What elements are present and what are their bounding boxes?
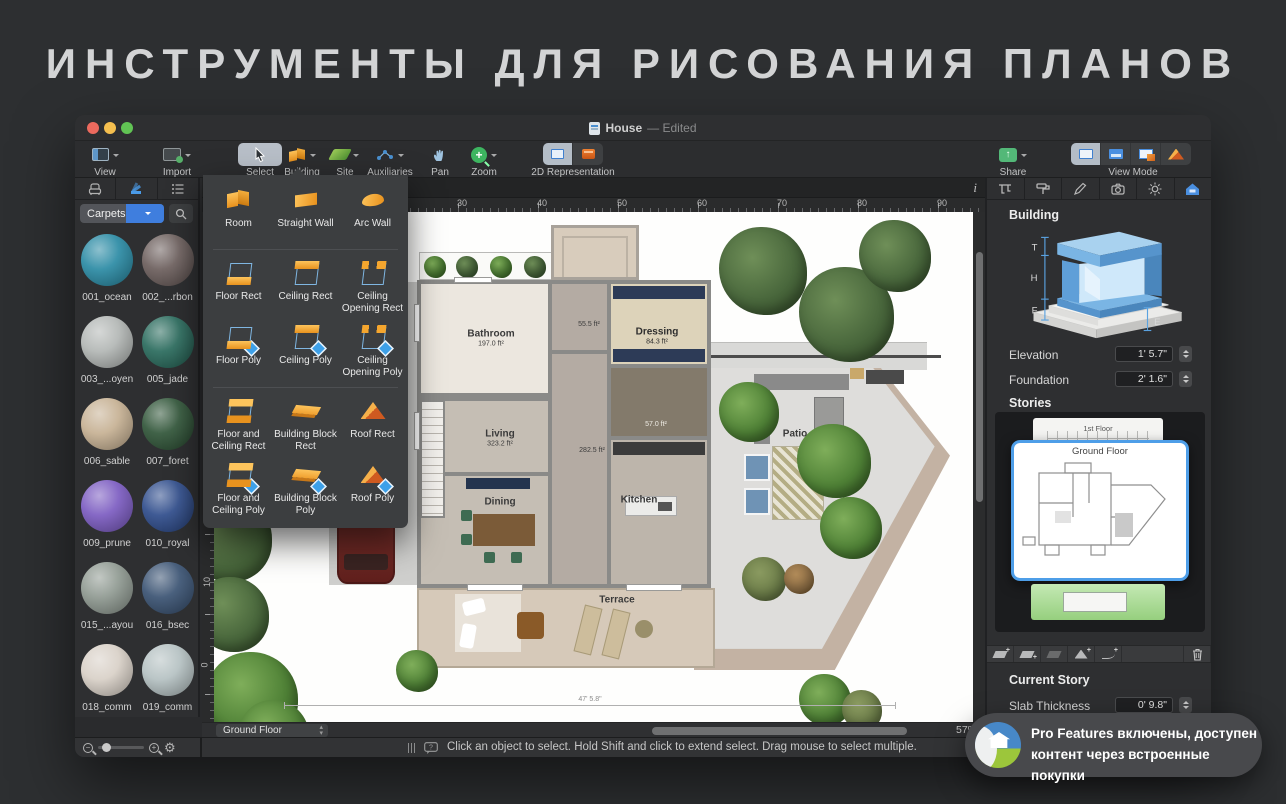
fire-pit <box>784 564 814 594</box>
current-story-title: Current Story <box>1009 673 1090 687</box>
ceiling-rect-icon <box>290 260 322 286</box>
caliper-icon <box>997 181 1013 197</box>
swatch-label: 005_jade <box>147 374 188 385</box>
menu-separator <box>213 249 398 250</box>
add-roof-button[interactable]: + <box>1068 646 1095 662</box>
toolbar: View Import Select Building Site Auxilia… <box>75 141 1211 178</box>
flower-bush <box>396 650 438 692</box>
2d-elevation-view-button[interactable] <box>573 143 603 165</box>
pro-features-toast[interactable]: Pro Features включены, доступенконтент ч… <box>965 713 1262 777</box>
tab-list[interactable] <box>158 178 198 199</box>
menu-item-floor-and-ceiling-poly[interactable]: Floor and Ceiling Poly <box>205 458 272 522</box>
vertical-scrollbar-thumb[interactable] <box>976 252 983 502</box>
materials-fan-icon <box>128 181 144 197</box>
titlebar: House — Edited <box>75 115 1211 141</box>
room-label-dressing: Dressing84.3 ft² <box>636 327 679 346</box>
menu-item-roof-poly[interactable]: Roof Poly <box>339 458 406 522</box>
material-swatch[interactable] <box>81 234 133 286</box>
room-label-dining: Dining <box>484 497 515 508</box>
menu-item-floor-and-ceiling-rect[interactable]: Floor and Ceiling Rect <box>205 394 272 458</box>
duplicate-story-button[interactable] <box>1041 646 1068 662</box>
tab-building[interactable] <box>1175 178 1212 199</box>
auxiliaries-tool-button[interactable] <box>368 143 412 166</box>
tab-camera[interactable] <box>1100 178 1138 199</box>
room-icon <box>223 187 255 213</box>
room-hall[interactable] <box>548 280 611 354</box>
zoom-tool-button[interactable]: + <box>462 143 506 166</box>
swatch-label: 002_...rbon <box>142 292 193 303</box>
toast-message: Pro Features включены, доступенконтент ч… <box>1031 724 1262 787</box>
inspector-panel: Building T <box>985 178 1211 737</box>
menu-item-floor-poly[interactable]: Floor Poly <box>205 320 272 384</box>
search-icon <box>175 208 187 220</box>
add-spline-button[interactable]: + <box>1095 646 1122 662</box>
room-label-bathroom: Bathroom197.0 ft² <box>467 329 514 348</box>
window-marker <box>414 412 420 450</box>
diagram-label-h: H <box>1031 273 1038 284</box>
drag-grip-icon[interactable] <box>408 743 416 753</box>
room-label-corridor: 282.5 ft² <box>579 446 605 454</box>
menu-item-ceiling-opening-rect[interactable]: Ceiling Opening Rect <box>339 256 406 320</box>
swatch-label: 016_bsec <box>146 620 189 631</box>
room-label-living: Living323.2 ft² <box>485 429 514 448</box>
material-swatch[interactable] <box>81 644 133 696</box>
menu-item-arc-wall[interactable]: Arc Wall <box>339 183 406 246</box>
tab-object-properties[interactable] <box>987 178 1025 199</box>
room-dressing[interactable] <box>607 280 711 368</box>
sun-icon <box>1147 181 1163 197</box>
tab-light[interactable] <box>1137 178 1175 199</box>
swatch-label: 015_...ayou <box>81 620 133 631</box>
page-title: ИНСТРУМЕНТЫ ДЛЯ РИСОВАНИЯ ПЛАНОВ <box>0 40 1286 88</box>
search-button[interactable] <box>169 204 193 223</box>
dimension-line: 47' 5.8" <box>284 705 896 706</box>
magnifier-plus-icon: + <box>471 147 487 163</box>
2d-plan-view-button[interactable] <box>543 143 573 165</box>
chevron-down-icon <box>1021 154 1027 160</box>
menu-item-ceiling-rect[interactable]: Ceiling Rect <box>272 256 339 320</box>
material-swatch-grid: 001_ocean 002_...rbon 003_...oyen 005_ja… <box>75 227 198 723</box>
share-button[interactable]: ↑ <box>991 143 1035 166</box>
tab-furniture[interactable] <box>75 178 116 199</box>
menu-item-ceiling-opening-poly[interactable]: Ceiling Opening Poly <box>339 320 406 384</box>
building-diagram: T H F E <box>1005 224 1195 342</box>
material-swatch[interactable] <box>81 480 133 532</box>
select-tool-button[interactable] <box>238 143 282 166</box>
bbq-grill <box>866 370 904 384</box>
window-marker <box>454 277 492 283</box>
ceiling-opening-poly-icon <box>357 324 389 350</box>
building-tool-button[interactable] <box>282 143 322 166</box>
pencil-icon <box>1072 181 1088 197</box>
add-story-below-button[interactable]: + <box>1014 646 1041 662</box>
story-card-terrain[interactable] <box>1031 584 1165 620</box>
straight-wall-icon <box>290 187 322 213</box>
arc-wall-icon <box>357 187 389 213</box>
planter-row <box>419 252 554 280</box>
app-logo-icon <box>975 722 1021 768</box>
2d-elevation-icon <box>582 149 595 159</box>
lounger <box>744 488 770 515</box>
library-filter-row: Carpets <box>75 200 198 227</box>
menu-item-floor-rect[interactable]: Floor Rect <box>205 256 272 320</box>
view-mode-3d-icon <box>1109 149 1123 159</box>
import-icon <box>163 148 181 161</box>
zoom-in-icon[interactable]: + <box>149 743 159 753</box>
material-swatch[interactable] <box>142 562 194 614</box>
import-label: Import <box>145 167 209 178</box>
palm-plant <box>719 382 779 442</box>
app-window: House — Edited View Import Select Buildi… <box>75 115 1211 757</box>
view-icon <box>92 148 109 161</box>
horizontal-scrollbar-thumb[interactable] <box>652 727 907 735</box>
room-closet[interactable] <box>607 364 711 440</box>
library-sidebar: Carpets 001_ocean 002_...rbon 003_...oye… <box>75 178 200 717</box>
stories-toolbar: + + + + <box>987 645 1211 663</box>
ceiling-poly-icon <box>290 324 322 350</box>
bush <box>842 690 882 722</box>
diagram-label-e: E <box>1154 317 1160 328</box>
palm-plant <box>797 424 871 498</box>
terrace-floor <box>417 588 715 668</box>
slider-thumb[interactable] <box>102 743 111 752</box>
swatch-label: 010_royal <box>146 538 190 549</box>
zoom-out-icon[interactable]: − <box>83 743 93 753</box>
swatch-label: 007_foret <box>146 456 188 467</box>
share-label: Share <box>985 167 1041 178</box>
building-section-title: Building <box>1009 208 1059 222</box>
share-icon: ↑ <box>999 148 1017 162</box>
material-swatch[interactable] <box>142 644 194 696</box>
building-icon <box>288 147 306 163</box>
tree <box>214 577 269 652</box>
view-label: View <box>73 167 137 178</box>
door-marker <box>626 584 682 591</box>
chevron-down-icon <box>398 154 404 160</box>
tab-2d-properties[interactable] <box>1062 178 1100 199</box>
elevation-input[interactable]: 1' 5.7" <box>1115 346 1173 362</box>
story-selected-value: Ground Floor <box>223 725 282 736</box>
view-mode-split-button[interactable] <box>1131 143 1161 165</box>
category-selected-value: Carpets <box>80 208 126 220</box>
material-swatch[interactable] <box>142 480 194 532</box>
tab-materials-inspector[interactable] <box>1025 178 1063 199</box>
swatch-label: 009_prune <box>83 538 131 549</box>
document-name: House <box>605 121 642 135</box>
swatch-label: 019_comm <box>143 702 192 713</box>
material-swatch[interactable] <box>142 398 194 450</box>
menu-item-roof-rect[interactable]: Roof Rect <box>339 394 406 458</box>
tree <box>719 227 807 315</box>
story-card-ground-floor-selected[interactable]: Ground Floor <box>1011 440 1189 581</box>
view-mode-3d-button[interactable] <box>1101 143 1131 165</box>
door-marker <box>467 584 523 591</box>
view-mode-2d-button[interactable] <box>1071 143 1101 165</box>
document-title: House — Edited <box>75 115 1211 141</box>
stories-section-title: Stories <box>1009 396 1051 410</box>
lounger <box>744 454 770 481</box>
swatch-label: 018_comm <box>82 702 131 713</box>
auxiliaries-icon <box>376 148 394 162</box>
chevron-down-icon <box>126 204 164 223</box>
diagram-label-f: F <box>1032 305 1038 316</box>
swatch-label: 001_ocean <box>82 292 132 303</box>
view-mode-roof-icon <box>1168 149 1184 160</box>
foundation-input[interactable]: 2' 1.6" <box>1115 371 1173 387</box>
room-label-patio: Patio <box>783 429 807 440</box>
floor-poly-icon <box>223 324 255 350</box>
gear-icon[interactable]: ⚙ <box>164 741 176 754</box>
import-button[interactable] <box>153 143 201 166</box>
shrub <box>742 557 786 601</box>
menu-item-building-block-poly[interactable]: Building Block Poly <box>272 458 339 522</box>
window-marker <box>414 304 420 342</box>
library-zoom-controls: − + ⚙ <box>75 738 202 757</box>
room-corridor[interactable] <box>548 350 611 588</box>
document-edited-state: — Edited <box>647 121 696 135</box>
floor-rect-icon <box>223 260 255 286</box>
representation-segmented-control <box>543 143 603 165</box>
chevron-down-icon <box>491 154 497 160</box>
view-mode-2d-icon <box>1079 149 1093 159</box>
svg-text:?: ? <box>429 744 433 751</box>
menu-item-ceiling-poly[interactable]: Ceiling Poly <box>272 320 339 384</box>
list-icon <box>170 181 186 197</box>
building-block-rect-icon <box>290 398 322 424</box>
elevation-stepper[interactable] <box>1179 346 1192 362</box>
material-swatch[interactable] <box>142 234 194 286</box>
floor-and-ceiling-poly-icon <box>223 462 255 488</box>
room-label-terrace: Terrace <box>599 595 634 606</box>
status-hint-text: Click an object to select. Hold Shift an… <box>447 741 917 753</box>
armchair-icon <box>87 181 103 197</box>
chevron-down-icon <box>185 154 191 160</box>
room-label-kitchen: Kitchen <box>621 495 658 506</box>
add-story-button[interactable]: + <box>987 646 1014 662</box>
building-block-poly-icon <box>290 462 322 488</box>
view-mode-elevation-button[interactable] <box>1161 143 1191 165</box>
story-card-title: Ground Floor <box>1014 446 1186 457</box>
ceiling-opening-rect-icon <box>357 260 389 286</box>
site-icon <box>328 149 352 160</box>
2d-plan-icon <box>551 149 564 159</box>
material-swatch[interactable] <box>81 316 133 368</box>
category-select[interactable]: Carpets <box>80 204 164 223</box>
view-mode-split-icon <box>1139 149 1153 159</box>
story-selector-popup[interactable]: Ground Floor ▴▾ <box>216 724 328 737</box>
stories-viewer: 1st Floor Ground Floor <box>995 412 1205 632</box>
material-swatch[interactable] <box>81 562 133 614</box>
chevron-down-icon <box>113 154 119 160</box>
slab-thickness-stepper[interactable] <box>1179 697 1192 713</box>
library-zoom-slider[interactable] <box>98 746 144 749</box>
building-tools-menu: Room Straight Wall Arc Wall Floor Rect C… <box>203 175 408 528</box>
chevron-down-icon <box>310 154 316 160</box>
elevation-label: Elevation <box>1009 348 1058 362</box>
house-icon <box>1184 181 1201 197</box>
diagram-label-t: T <box>1032 243 1038 254</box>
room-label-hall: 55.5 ft² <box>578 320 600 328</box>
story-thumbnail <box>1015 457 1185 575</box>
view-button[interactable] <box>83 143 127 166</box>
tree <box>859 220 931 292</box>
slab-thickness-label: Slab Thickness <box>1009 699 1090 713</box>
vertical-scrollbar[interactable] <box>973 212 985 722</box>
slab-thickness-input[interactable]: 0' 9.8" <box>1115 697 1173 713</box>
popup-arrows-icon: ▴▾ <box>319 725 323 737</box>
menu-item-room[interactable]: Room <box>205 183 272 246</box>
stairs <box>420 400 445 518</box>
material-swatch[interactable] <box>81 398 133 450</box>
inspector-tabs <box>987 178 1211 200</box>
view-mode-segmented-control <box>1071 143 1191 165</box>
tab-materials[interactable] <box>116 178 157 199</box>
info-icon[interactable]: i <box>973 180 977 196</box>
paint-roller-icon <box>1035 181 1051 197</box>
chevron-down-icon <box>353 154 359 160</box>
delete-story-button[interactable] <box>1184 646 1211 662</box>
room-label-closet: 57.0 ft² <box>645 420 667 428</box>
view-mode-label: View Mode <box>1071 167 1195 178</box>
cursor-icon <box>253 147 267 163</box>
foundation-label: Foundation <box>1009 373 1069 387</box>
representation-label: 2D Representation <box>503 167 643 178</box>
swatch-label: 006_sable <box>84 456 130 467</box>
roof-rect-icon <box>357 398 389 424</box>
pan-tool-button[interactable] <box>422 143 458 166</box>
canvas-bottom-bar: Ground Floor ▴▾ 57% <box>202 722 985 737</box>
menu-item-building-block-rect[interactable]: Building Block Rect <box>272 394 339 458</box>
palm-plant <box>820 497 882 559</box>
roof-poly-icon <box>357 462 389 488</box>
trash-icon <box>1192 648 1203 661</box>
swatch-label: 003_...oyen <box>81 374 133 385</box>
menu-item-straight-wall[interactable]: Straight Wall <box>272 183 339 246</box>
camera-icon <box>1110 181 1126 197</box>
site-tool-button[interactable] <box>326 143 364 166</box>
dimension-value: 47' 5.8" <box>578 696 601 703</box>
help-bubble-icon: ? <box>424 742 438 754</box>
hand-icon <box>432 147 448 163</box>
foundation-stepper[interactable] <box>1179 371 1192 387</box>
library-tabs <box>75 178 198 200</box>
entry-porch <box>551 225 639 280</box>
room-kitchen[interactable] <box>607 436 711 588</box>
material-swatch[interactable] <box>142 316 194 368</box>
menu-separator <box>213 387 398 388</box>
document-icon <box>589 122 600 135</box>
floor-and-ceiling-rect-icon <box>223 398 255 424</box>
